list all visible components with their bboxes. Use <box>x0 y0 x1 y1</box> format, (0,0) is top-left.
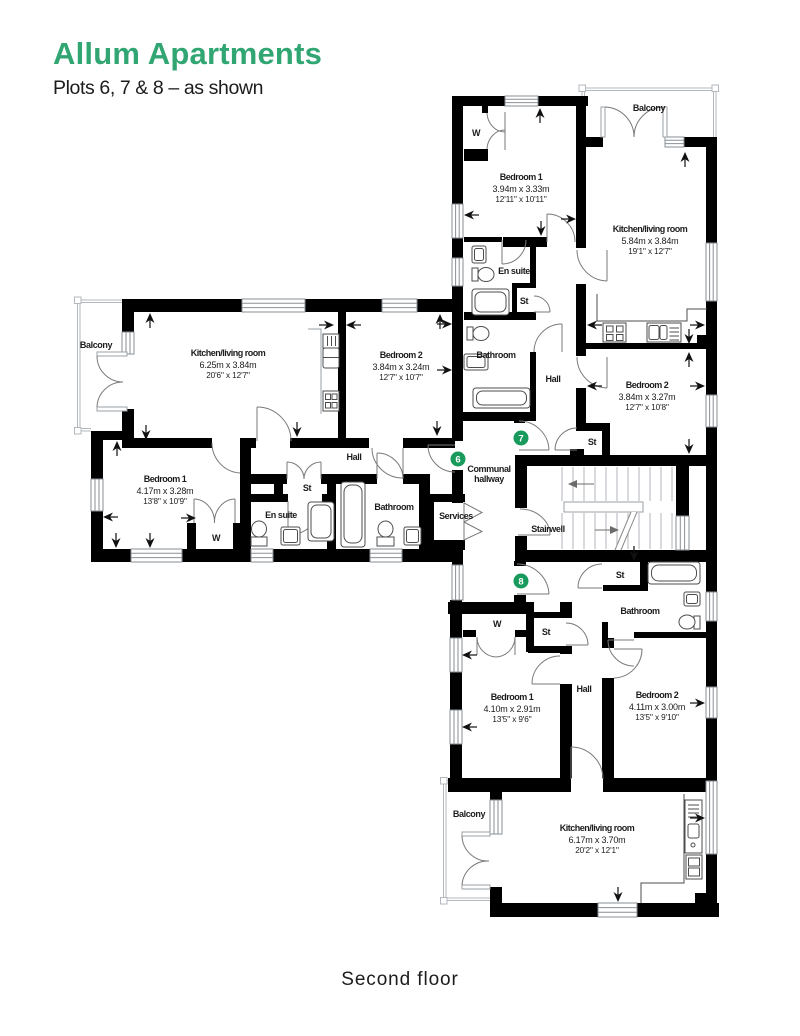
svg-text:Allum Apartments: Allum Apartments <box>53 36 322 71</box>
svg-text:En suite: En suite <box>265 510 297 520</box>
svg-text:5.84m x 3.84m: 5.84m x 3.84m <box>622 236 679 246</box>
svg-text:Hall: Hall <box>577 684 592 694</box>
svg-text:Kitchen/living room: Kitchen/living room <box>613 224 688 234</box>
svg-text:Kitchen/living room: Kitchen/living room <box>560 823 635 833</box>
svg-text:Bathroom: Bathroom <box>374 502 414 512</box>
svg-text:3.94m x 3.33m: 3.94m x 3.33m <box>493 184 550 194</box>
svg-text:Second floor: Second floor <box>341 969 458 990</box>
svg-text:4.11m x 3.00m: 4.11m x 3.00m <box>629 702 685 712</box>
svg-text:4.17m x 3.28m: 4.17m x 3.28m <box>137 486 194 496</box>
svg-text:13'5" x 9'6": 13'5" x 9'6" <box>492 715 531 724</box>
svg-text:Bedroom 1: Bedroom 1 <box>144 474 187 484</box>
svg-text:19'1" x 12'7": 19'1" x 12'7" <box>628 247 672 256</box>
svg-text:Bedroom 1: Bedroom 1 <box>491 692 534 702</box>
svg-text:Bedroom 2: Bedroom 2 <box>380 350 423 360</box>
svg-text:12'7" x 10'7": 12'7" x 10'7" <box>379 373 423 382</box>
svg-text:Balcony: Balcony <box>633 103 666 113</box>
svg-text:6.25m x 3.84m: 6.25m x 3.84m <box>200 360 257 370</box>
svg-text:Plots 6, 7 & 8 – as shown: Plots 6, 7 & 8 – as shown <box>53 77 263 99</box>
svg-text:Services: Services <box>439 511 473 521</box>
svg-text:Balcony: Balcony <box>453 809 486 819</box>
svg-text:Kitchen/living room: Kitchen/living room <box>191 348 266 358</box>
svg-text:W: W <box>493 619 502 629</box>
svg-text:W: W <box>472 128 481 138</box>
svg-text:Bathroom: Bathroom <box>620 606 660 616</box>
svg-text:12'11" x 10'11": 12'11" x 10'11" <box>495 195 546 204</box>
svg-text:Bathroom: Bathroom <box>476 350 516 360</box>
svg-text:St: St <box>616 570 625 580</box>
svg-text:7: 7 <box>518 434 523 445</box>
svg-text:20'2" x 12'1": 20'2" x 12'1" <box>575 846 619 855</box>
svg-text:Communal: Communal <box>467 464 510 474</box>
svg-text:Bedroom 2: Bedroom 2 <box>626 380 669 390</box>
svg-text:hallway: hallway <box>474 474 504 484</box>
svg-text:Stairwell: Stairwell <box>531 524 564 534</box>
svg-text:6: 6 <box>455 455 460 466</box>
svg-text:20'6" x 12'7": 20'6" x 12'7" <box>206 371 250 380</box>
svg-text:Hall: Hall <box>546 374 561 384</box>
svg-text:13'8" x 10'9": 13'8" x 10'9" <box>143 497 187 506</box>
svg-text:W: W <box>212 533 221 543</box>
svg-text:3.84m x 3.27m: 3.84m x 3.27m <box>619 392 676 402</box>
svg-text:En suite: En suite <box>498 266 530 276</box>
svg-text:8: 8 <box>518 577 523 588</box>
svg-text:12'7" x 10'8": 12'7" x 10'8" <box>625 403 669 412</box>
svg-text:Bedroom 2: Bedroom 2 <box>636 690 679 700</box>
svg-text:13'5" x 9'10": 13'5" x 9'10" <box>635 713 679 722</box>
svg-text:St: St <box>542 627 551 637</box>
svg-text:6.17m x 3.70m: 6.17m x 3.70m <box>569 835 626 845</box>
svg-text:Bedroom 1: Bedroom 1 <box>500 172 543 182</box>
svg-text:3.84m x 3.24m: 3.84m x 3.24m <box>373 362 430 372</box>
svg-text:St: St <box>520 296 529 306</box>
svg-text:Hall: Hall <box>347 452 362 462</box>
svg-text:4.10m x 2.91m: 4.10m x 2.91m <box>484 704 541 714</box>
svg-text:St: St <box>588 437 597 447</box>
svg-text:St: St <box>303 483 312 493</box>
svg-text:Balcony: Balcony <box>80 340 113 350</box>
